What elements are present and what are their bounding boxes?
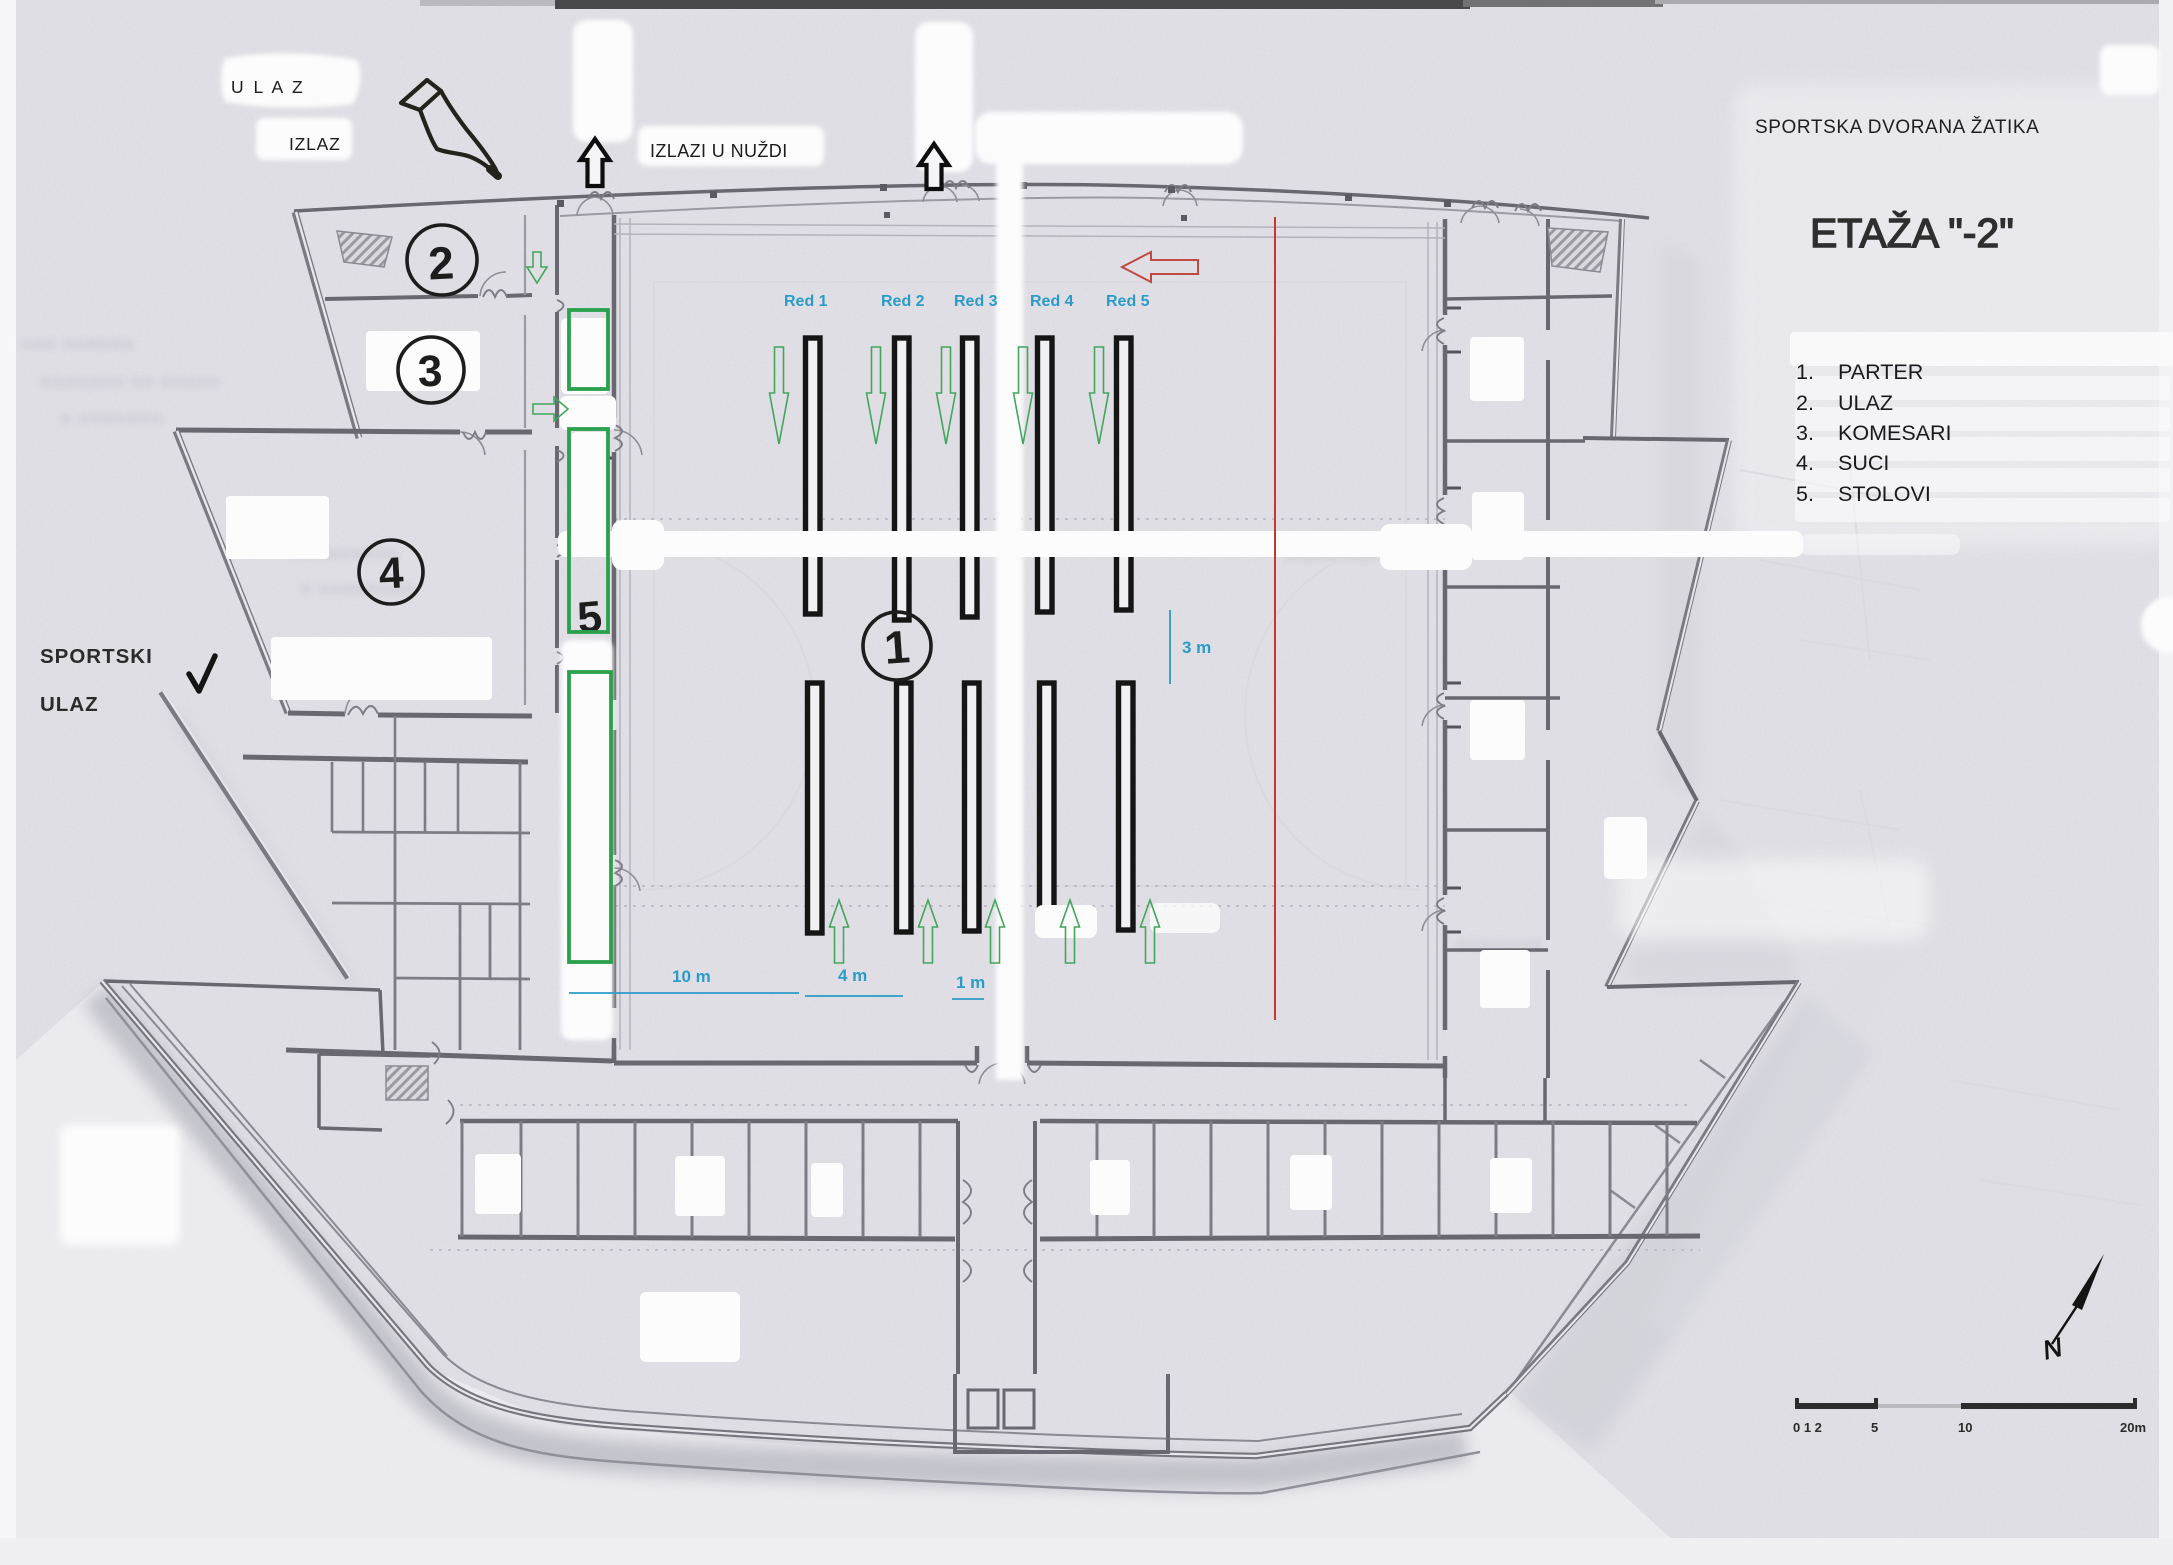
svg-text:1 m: 1 m: [956, 973, 985, 992]
svg-text:Red 4: Red 4: [1030, 293, 1074, 310]
svg-text:■■■■■■■ ■■ ■■■■■: ■■■■■■■ ■■ ■■■■■: [40, 371, 220, 393]
svg-text:1.: 1.: [1796, 360, 1814, 384]
svg-text:STOLOVI: STOLOVI: [1838, 482, 1931, 506]
svg-text:4: 4: [378, 548, 406, 598]
svg-text:4.: 4.: [1796, 451, 1814, 475]
svg-text:Red 2: Red 2: [881, 293, 925, 310]
svg-text:Red 5: Red 5: [1106, 293, 1150, 310]
svg-text:20m: 20m: [2120, 1420, 2146, 1435]
svg-text:■ ■■■■■■■: ■ ■■■■■■■: [60, 408, 162, 430]
svg-text:3.: 3.: [1796, 421, 1814, 445]
svg-text:Red 3: Red 3: [954, 293, 998, 310]
svg-text:0 1 2: 0 1 2: [1793, 1420, 1822, 1435]
svg-text:KOMESARI: KOMESARI: [1838, 421, 1952, 445]
svg-text:ULAZ: ULAZ: [40, 693, 99, 716]
svg-text:5.: 5.: [1796, 482, 1814, 506]
svg-text:SPORTSKA DVORANA ŽATIKA: SPORTSKA DVORANA ŽATIKA: [1755, 116, 2039, 138]
svg-text:2.: 2.: [1796, 391, 1814, 415]
svg-text:■■■ ■■■■■■: ■■■ ■■■■■■: [20, 333, 134, 355]
svg-text:1: 1: [882, 620, 911, 674]
svg-text:IZLAZ: IZLAZ: [289, 134, 341, 154]
svg-text:IZLAZI U NUŽDI: IZLAZI U NUŽDI: [650, 141, 788, 161]
svg-text:3 m: 3 m: [1182, 638, 1211, 657]
svg-text:10 m: 10 m: [672, 967, 711, 986]
svg-text:SUCI: SUCI: [1838, 451, 1889, 475]
svg-text:4 m: 4 m: [838, 966, 867, 985]
svg-text:5: 5: [575, 592, 604, 643]
svg-text:3: 3: [417, 347, 443, 397]
svg-text:Red 1: Red 1: [784, 293, 828, 310]
svg-text:ETAŽA "-2": ETAŽA "-2": [1810, 210, 2014, 256]
svg-text:5: 5: [1871, 1420, 1878, 1435]
svg-text:SPORTSKI: SPORTSKI: [40, 645, 153, 668]
svg-text:PARTER: PARTER: [1838, 360, 1923, 384]
svg-text:U L A Z: U L A Z: [231, 77, 305, 97]
svg-text:10: 10: [1958, 1420, 1972, 1435]
svg-text:ULAZ: ULAZ: [1838, 391, 1893, 415]
svg-text:2: 2: [427, 236, 455, 289]
